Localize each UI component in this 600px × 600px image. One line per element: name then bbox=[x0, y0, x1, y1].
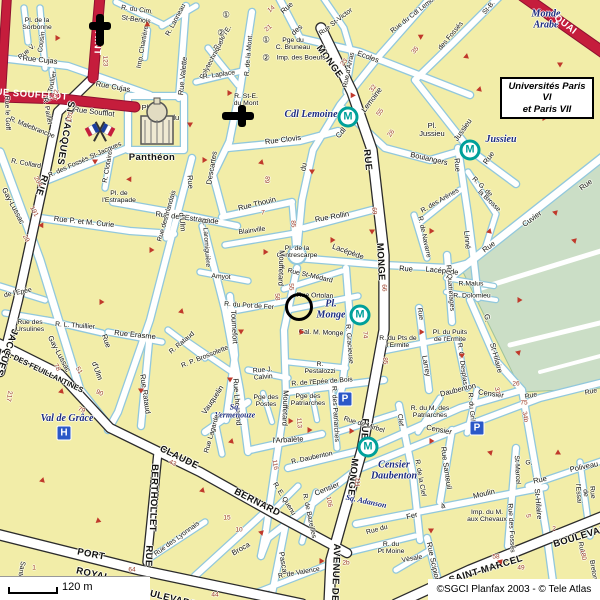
number-label: 217 bbox=[4, 390, 13, 402]
street-label: G. bbox=[482, 313, 491, 322]
street-label: Panthéon bbox=[129, 153, 175, 163]
flags-icon bbox=[83, 120, 117, 144]
number-label: 68 bbox=[265, 176, 273, 184]
street-label: R. du M. des Patriarches bbox=[411, 405, 450, 419]
number-label: 1 bbox=[32, 566, 36, 573]
one-way-arrow-icon bbox=[187, 123, 193, 128]
one-way-arrow-icon bbox=[518, 297, 523, 303]
street-label: Pl. du Puits de l'Ermite bbox=[433, 329, 467, 343]
one-way-arrow-icon bbox=[138, 389, 144, 394]
number-label: 55 bbox=[286, 283, 293, 291]
number-label: 64 bbox=[128, 568, 135, 575]
one-way-arrow-icon bbox=[227, 378, 233, 383]
number-label: 44 bbox=[211, 593, 218, 600]
street-label: Clef bbox=[396, 414, 404, 427]
metro-icon: M bbox=[338, 107, 359, 128]
street-label: Gal. M. Monge bbox=[299, 329, 344, 338]
street-label: BERTHOLLET bbox=[147, 464, 159, 532]
one-way-arrow-icon bbox=[150, 247, 155, 253]
poi-label: Censier Daubenton bbox=[371, 461, 417, 482]
street-label: ② bbox=[217, 29, 225, 38]
one-way-arrow-icon bbox=[428, 529, 434, 534]
one-way-arrow-icon bbox=[555, 450, 561, 455]
number-label: 37 bbox=[492, 387, 500, 395]
street-label: Rue le Goff bbox=[3, 96, 11, 130]
number-label: 106 bbox=[324, 496, 333, 508]
number-label: 75 bbox=[520, 401, 527, 408]
street-label: ① bbox=[222, 11, 230, 20]
street-label: Linné bbox=[462, 231, 471, 250]
street-label: St-Hilaire bbox=[533, 488, 544, 519]
street-label: Rue bbox=[452, 158, 461, 172]
street-label: Rue J. Calvin bbox=[253, 366, 274, 382]
street-label: R. Dolomieu bbox=[453, 292, 490, 299]
parking-icon: P bbox=[470, 421, 485, 436]
street-label: St-Marcel bbox=[513, 455, 522, 484]
street-label: RUE bbox=[361, 149, 373, 171]
street-label: d'Ulm bbox=[177, 212, 186, 232]
street-label: Tournefort bbox=[229, 310, 239, 344]
one-way-arrow-icon bbox=[331, 237, 336, 243]
street-label: ② bbox=[262, 54, 270, 63]
poi-label: Val de Grâce bbox=[41, 414, 94, 425]
street-label: R.Malus bbox=[459, 280, 484, 287]
metro-icon: M bbox=[358, 437, 379, 458]
street-label: Pl. de la Sorbonne bbox=[22, 17, 51, 31]
street-label: G. bbox=[525, 459, 532, 466]
one-way-arrow-icon bbox=[309, 170, 315, 175]
number-label: 111 bbox=[352, 477, 360, 487]
number-label: 180 bbox=[578, 549, 587, 561]
one-way-arrow-icon bbox=[92, 160, 98, 165]
number-label: 66 bbox=[379, 284, 386, 292]
one-way-arrow-icon bbox=[289, 418, 294, 424]
one-way-arrow-icon bbox=[430, 228, 435, 234]
one-way-arrow-icon bbox=[56, 35, 61, 41]
street-label: Rue de l'Essai bbox=[574, 482, 597, 503]
number-label: 49 bbox=[517, 566, 524, 573]
street-label: Rue des Ursulines bbox=[16, 319, 44, 333]
number-label: 15 bbox=[223, 516, 230, 523]
street-label: du bbox=[299, 162, 308, 172]
number-label: 34b bbox=[520, 411, 529, 423]
number-label: 74 bbox=[360, 331, 367, 339]
hospital-icon: H bbox=[57, 426, 72, 441]
number-label: 26 bbox=[512, 382, 519, 389]
poi-label: Sq. Vermenouze bbox=[215, 404, 255, 421]
number-label: 85 bbox=[380, 357, 387, 365]
one-way-arrow-icon bbox=[459, 354, 465, 359]
street-label: Rue bbox=[399, 265, 413, 274]
one-way-arrow-icon bbox=[308, 427, 313, 433]
metro-icon: M bbox=[350, 305, 371, 326]
church-icon bbox=[87, 12, 113, 48]
one-way-arrow-icon bbox=[420, 329, 425, 335]
number-label: 58 bbox=[272, 293, 279, 301]
street-label: Pl. de l'Estrapade bbox=[102, 190, 136, 204]
scale-label: 120 m bbox=[62, 581, 93, 593]
one-way-arrow-icon bbox=[557, 63, 563, 68]
universities-label-box: Universités Paris VI et Paris VII bbox=[500, 77, 594, 119]
one-way-arrow-icon bbox=[369, 230, 375, 235]
street-label: Pl. Jussieu bbox=[419, 122, 444, 138]
one-way-arrow-icon bbox=[350, 428, 355, 434]
street-label: Pge des Patriarches bbox=[291, 393, 325, 407]
one-way-arrow-icon bbox=[228, 90, 233, 96]
poi-label: Jussieu bbox=[485, 135, 516, 146]
poi-label: Pl. Monge bbox=[317, 300, 346, 321]
map-viewport[interactable]: Pl. de la SorbonneRue V.CousinRue CujasR… bbox=[0, 0, 600, 600]
scale-bar: 120 m bbox=[0, 576, 150, 600]
one-way-arrow-icon bbox=[320, 558, 325, 564]
street-label: Rue bbox=[185, 175, 194, 189]
number-label: 7 bbox=[261, 211, 265, 218]
number-label: 10 bbox=[235, 528, 242, 535]
number-label: 5 bbox=[523, 514, 530, 519]
one-way-arrow-icon bbox=[300, 329, 305, 335]
copyright-text: ©SGCI Planfax 2003 - © Tele Atlas bbox=[428, 579, 600, 600]
street-label: Mouffetard bbox=[276, 250, 285, 286]
street-label: ① bbox=[262, 36, 270, 45]
highlight-circle bbox=[285, 293, 313, 321]
street-label: Amyot bbox=[211, 273, 231, 281]
one-way-arrow-icon bbox=[203, 157, 208, 163]
street-label: R. Pestalozzi bbox=[305, 361, 336, 375]
one-way-arrow-icon bbox=[100, 299, 105, 305]
poi-label: Cdl Lemoine bbox=[284, 110, 337, 121]
number-label: 116 bbox=[270, 459, 279, 470]
number-label: 2b bbox=[342, 561, 349, 568]
number-label: 113 bbox=[294, 418, 302, 429]
street-label: l'Arbalète bbox=[272, 435, 303, 444]
metro-icon: M bbox=[460, 140, 481, 161]
street-label: RUE bbox=[143, 545, 154, 567]
number-label: 85 bbox=[288, 220, 295, 228]
parking-icon: P bbox=[338, 392, 353, 407]
street-label: Pge des Postes bbox=[254, 394, 279, 408]
street-label: Pge du C. Bruneau bbox=[276, 37, 310, 51]
one-way-arrow-icon bbox=[238, 330, 244, 335]
street-label: R. du Pts de l'Ermite bbox=[379, 335, 416, 349]
street-label: Imp. des Boeufs bbox=[276, 54, 325, 61]
church-icon bbox=[220, 103, 256, 129]
street-label: R. du Pt Moine bbox=[378, 541, 405, 555]
scale-line bbox=[8, 587, 58, 594]
one-way-arrow-icon bbox=[430, 438, 435, 444]
pantheon-icon bbox=[135, 96, 179, 148]
one-way-arrow-icon bbox=[264, 249, 269, 255]
number-label: 69 bbox=[369, 207, 376, 215]
number-label: 123 bbox=[100, 55, 107, 66]
number-label: 2 bbox=[552, 527, 556, 534]
street-label: Imp. du M. aux Chevaux bbox=[467, 509, 507, 523]
street-label: MONGE bbox=[374, 243, 386, 281]
